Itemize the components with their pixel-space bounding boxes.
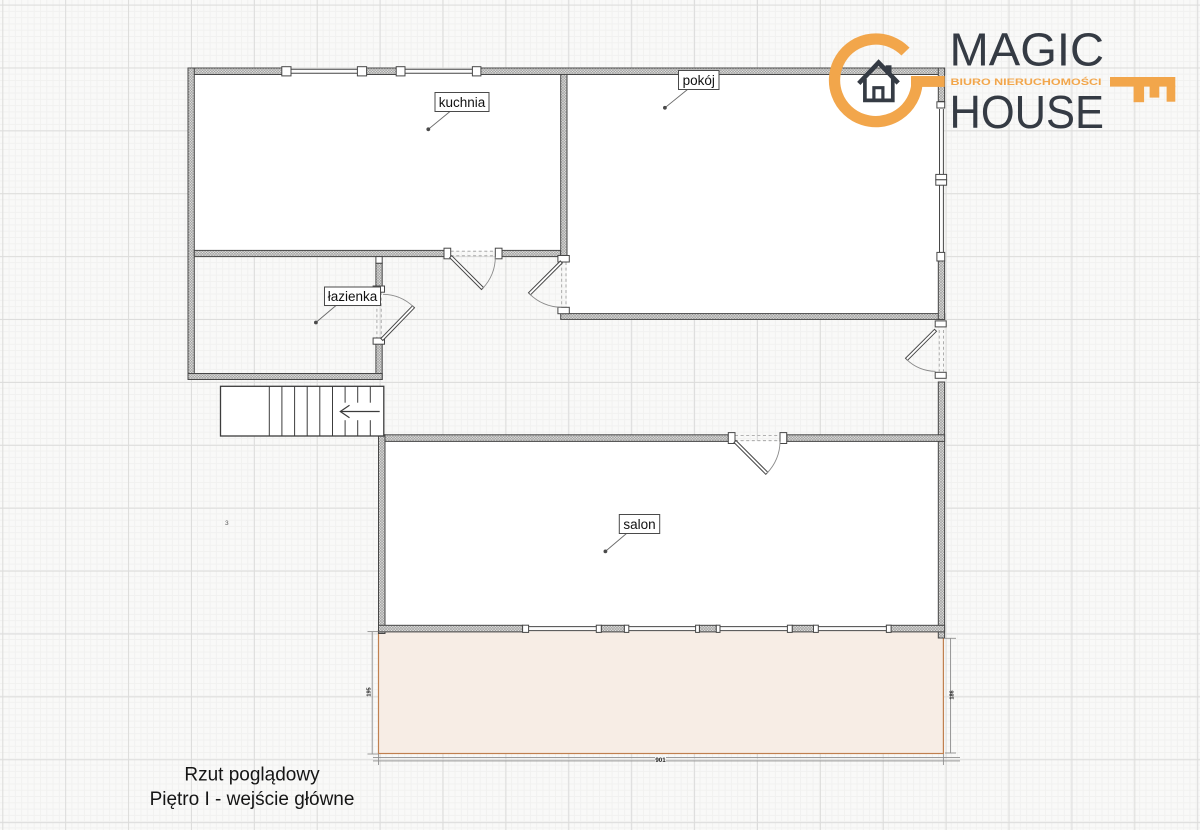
svg-text:MAGIC: MAGIC (950, 23, 1105, 75)
svg-text:pokój: pokój (683, 73, 715, 88)
svg-text:186: 186 (950, 690, 956, 699)
svg-text:HOUSE: HOUSE (950, 86, 1105, 138)
svg-text:kuchnia: kuchnia (439, 95, 486, 110)
svg-text:195: 195 (367, 687, 373, 696)
svg-text:łazienka: łazienka (328, 289, 378, 304)
svg-text:901: 901 (655, 757, 666, 764)
svg-text:Rzut poglądowy: Rzut poglądowy (184, 765, 320, 786)
svg-text:3: 3 (225, 520, 229, 527)
svg-text:Piętro I - wejście główne: Piętro I - wejście główne (150, 789, 355, 810)
svg-text:salon: salon (623, 517, 655, 532)
